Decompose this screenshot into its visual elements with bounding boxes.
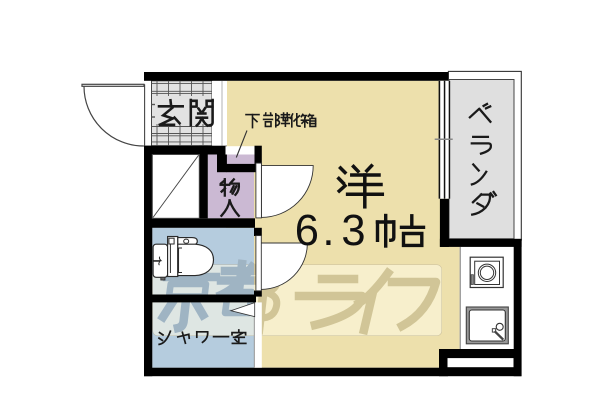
- svg-text:6: 6: [295, 207, 319, 255]
- svg-text:.: .: [322, 207, 334, 255]
- svg-text:3: 3: [341, 207, 365, 255]
